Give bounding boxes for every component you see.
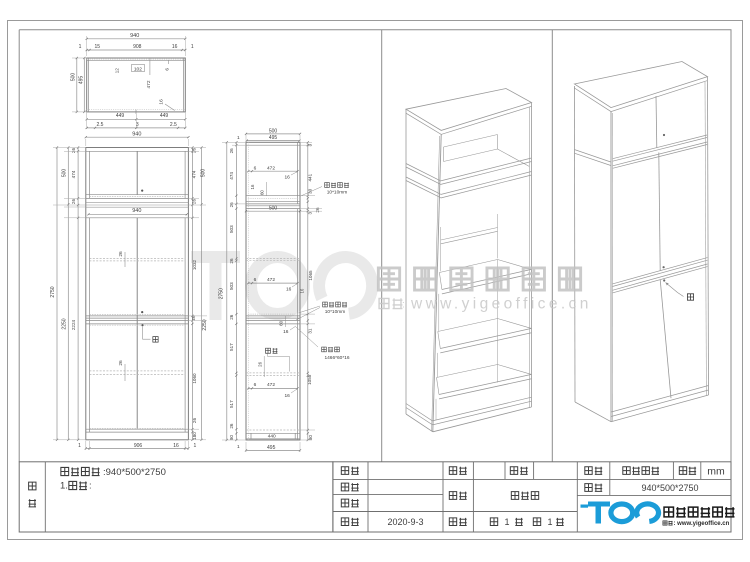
svg-text:80: 80 [308, 435, 313, 441]
svg-text:10*10mm: 10*10mm [325, 309, 346, 315]
svg-text:449: 449 [116, 113, 125, 119]
svg-text:180: 180 [192, 432, 197, 440]
svg-text:2250: 2250 [61, 318, 67, 329]
svg-text:472: 472 [267, 382, 275, 388]
svg-text:16: 16 [286, 287, 292, 293]
svg-text:1.: 1. [60, 481, 68, 492]
svg-text:1: 1 [78, 443, 81, 449]
svg-text:495: 495 [78, 76, 84, 85]
svg-text:26: 26 [315, 207, 320, 213]
svg-text:2020-9-3: 2020-9-3 [387, 517, 423, 527]
svg-text:26: 26 [192, 148, 197, 154]
svg-text:16: 16 [172, 44, 178, 50]
svg-text:1032: 1032 [192, 259, 197, 270]
svg-text:16: 16 [285, 393, 291, 399]
svg-text:2250: 2250 [202, 319, 208, 330]
svg-text:472: 472 [146, 80, 152, 88]
svg-text:1055: 1055 [307, 374, 312, 385]
svg-text:26: 26 [192, 418, 197, 424]
svg-text:449: 449 [160, 113, 169, 119]
svg-text:2.5: 2.5 [97, 122, 104, 128]
svg-text:440: 440 [268, 434, 276, 440]
svg-text:3: 3 [307, 211, 312, 214]
svg-text:495: 495 [267, 445, 276, 451]
svg-text:26: 26 [229, 314, 234, 320]
svg-text::940*500*2750: :940*500*2750 [103, 467, 166, 478]
svg-text:: www.yigeoffice.cn: : www.yigeoffice.cn [674, 521, 730, 527]
svg-text:474: 474 [229, 172, 234, 180]
svg-text:1060: 1060 [192, 373, 197, 384]
svg-text:2224: 2224 [71, 319, 76, 330]
svg-text:6: 6 [165, 68, 171, 71]
svg-text:472: 472 [267, 166, 275, 172]
svg-text:517: 517 [229, 400, 234, 408]
svg-text:16: 16 [173, 443, 179, 449]
svg-text:500: 500 [201, 169, 207, 178]
svg-text:16: 16 [250, 184, 255, 189]
svg-text:1: 1 [237, 135, 240, 141]
svg-text:26: 26 [71, 148, 76, 154]
svg-text:2.5: 2.5 [170, 122, 177, 128]
svg-text:908: 908 [133, 44, 142, 50]
svg-text:6: 6 [254, 166, 257, 172]
svg-text:26: 26 [257, 361, 262, 366]
svg-text:16: 16 [283, 329, 289, 335]
svg-text:26: 26 [118, 251, 124, 257]
svg-text:474: 474 [192, 170, 197, 178]
svg-text:500: 500 [61, 169, 67, 178]
svg-text:472: 472 [267, 277, 275, 283]
svg-text:26: 26 [229, 202, 234, 208]
svg-text:1065: 1065 [308, 270, 313, 281]
svg-text:6: 6 [254, 382, 257, 388]
svg-text:1: 1 [79, 44, 82, 50]
svg-text:906: 906 [134, 443, 143, 449]
svg-text:1: 1 [191, 44, 194, 50]
svg-text:500: 500 [71, 73, 77, 82]
svg-text:940: 940 [132, 208, 141, 214]
svg-text:26: 26 [71, 199, 76, 205]
svg-text:80: 80 [229, 435, 234, 441]
svg-text:16: 16 [285, 175, 291, 181]
svg-text:31: 31 [307, 328, 312, 334]
svg-text:2750: 2750 [218, 288, 224, 299]
svg-text:mm: mm [707, 466, 725, 478]
svg-text:26: 26 [118, 360, 124, 366]
svg-text:1466*60*16: 1466*60*16 [324, 355, 349, 361]
svg-text:26: 26 [192, 199, 197, 205]
svg-text:60: 60 [279, 320, 284, 325]
svg-text:940: 940 [130, 33, 139, 39]
svg-text:503: 503 [229, 282, 234, 290]
svg-text:517: 517 [229, 343, 234, 351]
svg-text:500: 500 [269, 128, 278, 134]
svg-text:26: 26 [229, 148, 234, 154]
svg-text:503: 503 [229, 225, 234, 233]
svg-text:474: 474 [71, 170, 76, 178]
svg-text:15: 15 [95, 44, 101, 50]
svg-text:940*500*2750: 940*500*2750 [641, 483, 698, 493]
svg-text:www.yigeoffice.cn: www.yigeoffice.cn [410, 296, 592, 313]
svg-text::: : [89, 481, 92, 492]
svg-text:1: 1 [194, 443, 197, 449]
svg-text:441: 441 [307, 173, 312, 181]
svg-text:12: 12 [115, 68, 121, 74]
svg-text:2750: 2750 [50, 286, 56, 297]
svg-text::: : [402, 300, 405, 311]
svg-text:16: 16 [299, 288, 304, 293]
svg-text:1: 1 [547, 517, 552, 527]
svg-text:102: 102 [134, 66, 142, 72]
svg-text:6: 6 [254, 277, 257, 283]
svg-text:500: 500 [269, 206, 278, 212]
svg-text:26: 26 [229, 258, 234, 264]
svg-text:16: 16 [159, 99, 165, 105]
svg-text:940: 940 [132, 132, 141, 138]
svg-text:1: 1 [237, 444, 240, 450]
svg-text:495: 495 [269, 135, 278, 141]
svg-text:26: 26 [229, 423, 234, 429]
svg-text:1: 1 [504, 517, 509, 527]
svg-text:10*10mm: 10*10mm [327, 190, 348, 196]
svg-text:60: 60 [260, 190, 265, 195]
